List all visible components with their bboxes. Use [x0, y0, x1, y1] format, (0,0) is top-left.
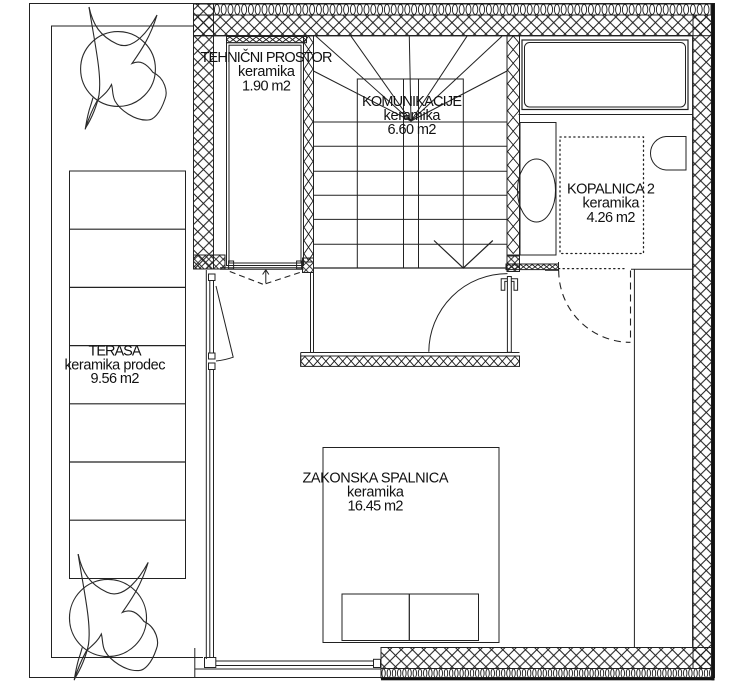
svg-text:6.60 m2: 6.60 m2: [388, 122, 437, 138]
svg-text:keramika: keramika: [238, 64, 296, 80]
svg-text:1.90 m2: 1.90 m2: [242, 79, 291, 95]
svg-text:9.56 m2: 9.56 m2: [91, 371, 140, 387]
svg-text:4.26 m2: 4.26 m2: [587, 210, 636, 226]
svg-text:16.45 m2: 16.45 m2: [348, 498, 404, 514]
